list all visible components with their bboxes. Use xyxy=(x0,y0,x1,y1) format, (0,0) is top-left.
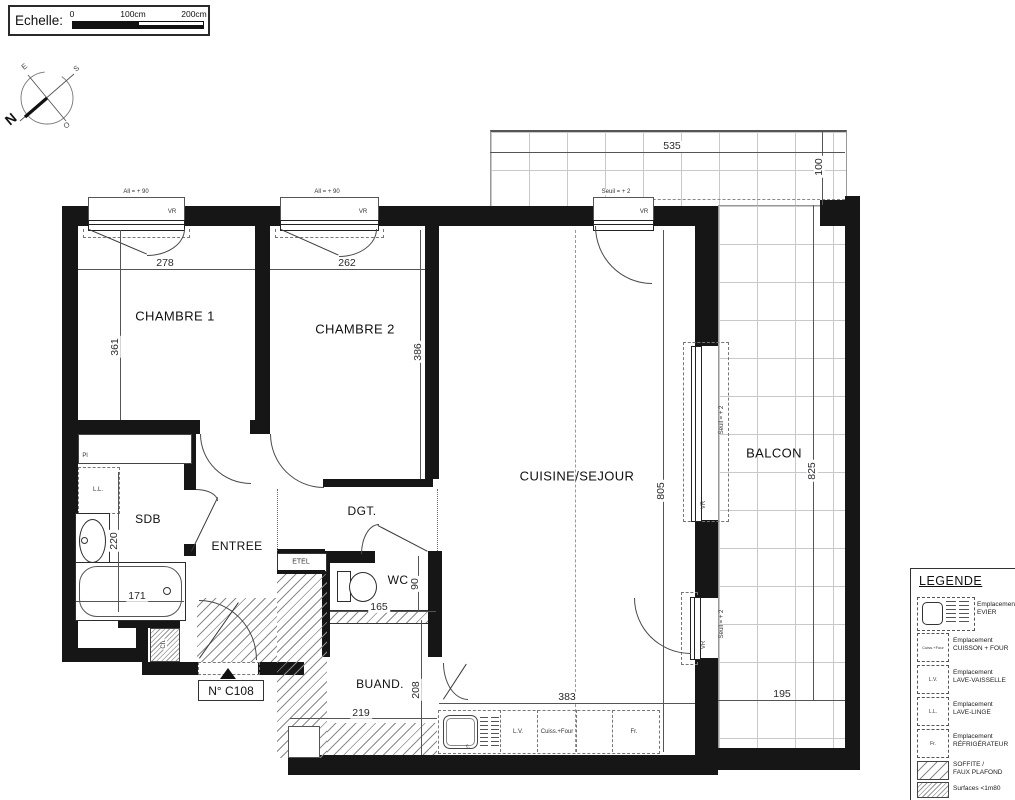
dim-label-chambre1-w: 278 xyxy=(154,258,176,269)
dim-line xyxy=(270,269,425,270)
wall xyxy=(136,628,148,662)
open-boundary-dotted xyxy=(277,489,278,551)
legend-label-surfaces: Surfaces <1m80 xyxy=(953,785,1001,793)
evier-drainer-icon xyxy=(959,601,969,625)
dim-label-sdb-h: 220 xyxy=(109,530,120,552)
bathtub-drain xyxy=(163,587,171,595)
kitchen-sink-inner xyxy=(446,718,475,746)
legend-label-soffite: SOFFITE / FAUX PLAFOND xyxy=(953,761,1002,777)
legend-label-lave-linge: Emplacement LAVE-LINGE xyxy=(953,701,993,717)
dim-label-chambre2-w: 262 xyxy=(336,258,358,269)
wall xyxy=(288,755,718,775)
door-swing-arc xyxy=(595,226,652,284)
door-swing-arc xyxy=(200,434,251,484)
vr-note: VR xyxy=(701,641,707,649)
toilet-bowl xyxy=(349,572,377,602)
water-heater-label: Ch. xyxy=(161,638,167,649)
vr-note: VR xyxy=(701,501,707,509)
wall xyxy=(277,570,325,574)
washer-label: L.L. xyxy=(93,487,103,493)
door-swing-arc xyxy=(361,524,379,554)
dim-label-balcon-w: 195 xyxy=(771,689,793,700)
dim-label-balcon-top-d: 100 xyxy=(814,156,825,178)
allege-note: All = + 90 xyxy=(314,189,339,195)
compass-rose: N E S O xyxy=(2,28,102,128)
wall xyxy=(695,206,718,346)
dim-label-wc-h: 90 xyxy=(410,576,421,592)
compass-north-arrow xyxy=(25,98,47,117)
room-label-buand: BUAND. xyxy=(356,677,404,691)
scale-tick-200: 200cm xyxy=(181,9,207,19)
evier-icon xyxy=(922,602,943,625)
room-label-wc: WC xyxy=(388,573,409,587)
wall xyxy=(255,226,270,420)
room-label-sdb: SDB xyxy=(135,512,161,526)
wall xyxy=(377,206,593,226)
floor-plan-page: Echelle: 0 100cm 200cm N E S O xyxy=(0,0,1015,800)
room-label-dgt: DGT. xyxy=(348,504,377,518)
compass-label-s: S xyxy=(72,63,82,73)
counter-divider xyxy=(612,710,613,752)
door-swing-arc xyxy=(270,434,324,488)
legend-item-refrigerateur: Fr. xyxy=(917,729,949,758)
wall xyxy=(820,200,846,226)
compass-label-n: N xyxy=(2,110,20,128)
counter-divider xyxy=(576,710,577,752)
dishwasher-label: L.V. xyxy=(513,729,523,735)
legend-label-cuisson-four: Emplacement CUISSON + FOUR xyxy=(953,637,1008,653)
dim-line xyxy=(120,230,121,420)
scale-tick-100: 100cm xyxy=(120,9,146,19)
closet xyxy=(78,434,192,464)
balcony-right-tiles xyxy=(718,205,847,750)
wall xyxy=(62,648,142,662)
sink-drainer xyxy=(480,717,488,746)
zone-separation-dashed xyxy=(575,230,576,752)
seuil-note: Seuil = + 2 xyxy=(719,406,725,435)
dim-line xyxy=(78,269,255,270)
sink-drainer xyxy=(491,717,499,746)
door-leaf xyxy=(378,525,428,552)
dim-label-buand-w: 219 xyxy=(350,708,372,719)
wall xyxy=(845,196,860,770)
legend-panel: LEGENDE Emplacement EVIER Cuiss.+Four Em… xyxy=(910,568,1015,800)
wall xyxy=(142,662,198,675)
dim-label-wc-w: 165 xyxy=(368,602,390,613)
room-label-chambre1: CHAMBRE 1 xyxy=(135,309,214,324)
wall xyxy=(695,658,718,755)
dim-line xyxy=(718,700,845,701)
vr-note: VR xyxy=(359,209,367,215)
legend-item-lave-linge: L.L. xyxy=(917,697,949,726)
legend-title: LEGENDE xyxy=(919,574,982,588)
legend-item-soffite xyxy=(917,761,949,780)
casement-swing-arc xyxy=(339,229,377,257)
dim-label-cuisine-w: 383 xyxy=(556,692,578,703)
evier-drainer-icon xyxy=(946,601,956,625)
scale-label: Echelle: xyxy=(15,13,63,28)
vr-note: VR xyxy=(640,209,648,215)
wall xyxy=(718,748,860,770)
counter-divider xyxy=(500,710,501,752)
room-label-entree: ENTREE xyxy=(211,539,262,553)
legend-label-lave-vaisselle: Emplacement LAVE-VAISSELLE xyxy=(953,669,1006,685)
counter-divider xyxy=(537,710,538,752)
scale-segment-half xyxy=(138,21,204,29)
closet-label: Pl xyxy=(82,453,87,459)
wall xyxy=(78,420,200,434)
legend-item-surfaces xyxy=(917,782,949,798)
wall xyxy=(250,420,270,434)
entrance-marker-triangle xyxy=(220,668,236,679)
dim-label-balcon-top-w: 535 xyxy=(661,141,683,152)
dim-label-cuisine-h: 805 xyxy=(656,480,667,502)
scale-tick-0: 0 xyxy=(70,9,75,19)
vr-note: VR xyxy=(168,209,176,215)
compass-label-o: O xyxy=(62,120,72,128)
compass-label-e: E xyxy=(20,61,30,71)
legend-item-lave-vaisselle: L.V. xyxy=(917,665,949,694)
unit-number-tag: N° C108 xyxy=(198,680,264,701)
seuil-note: Seuil = + 2 xyxy=(719,610,725,639)
dim-label-bath-w: 171 xyxy=(126,591,148,602)
dim-label-chambre2-h: 386 xyxy=(413,341,424,363)
dim-line xyxy=(439,703,695,704)
dim-line xyxy=(490,152,845,153)
wall xyxy=(428,551,442,657)
sink-drain xyxy=(81,537,88,544)
tap-note: c. xyxy=(466,745,470,750)
wall xyxy=(695,520,718,598)
duct-box xyxy=(288,726,320,758)
dim-label-buand-h: 208 xyxy=(411,679,422,701)
room-label-balcon: BALCON xyxy=(746,446,802,461)
cooker-label: Cuiss.+Four xyxy=(541,729,574,735)
dim-label-chambre1-h: 361 xyxy=(110,336,121,358)
room-label-chambre2: CHAMBRE 2 xyxy=(315,322,394,337)
legend-item-cuisson-four: Cuiss.+Four xyxy=(917,633,949,662)
legend-label-refrigerateur: Emplacement RÉFRIGÉRATEUR xyxy=(953,733,1008,749)
wall xyxy=(323,479,433,487)
window-frame xyxy=(690,597,701,660)
dim-label-balcon-h: 825 xyxy=(807,460,818,482)
legend-label-evier: Emplacement EVIER xyxy=(977,601,1015,617)
casement-swing-arc xyxy=(147,229,185,256)
wall xyxy=(425,226,439,479)
fridge-label: Fr. xyxy=(631,729,638,735)
dim-line xyxy=(813,205,814,700)
window-frame xyxy=(691,346,702,522)
room-label-cuisine: CUISINE/SEJOUR xyxy=(520,469,635,484)
door-swing-arc xyxy=(196,489,218,501)
allege-note: All = + 90 xyxy=(123,189,148,195)
room-label-etel: ETEL xyxy=(292,559,310,566)
seuil-note: Seuil = + 2 xyxy=(601,189,632,195)
open-boundary-dotted xyxy=(437,489,438,551)
wall xyxy=(183,206,282,226)
legend-item-evier xyxy=(917,597,975,631)
